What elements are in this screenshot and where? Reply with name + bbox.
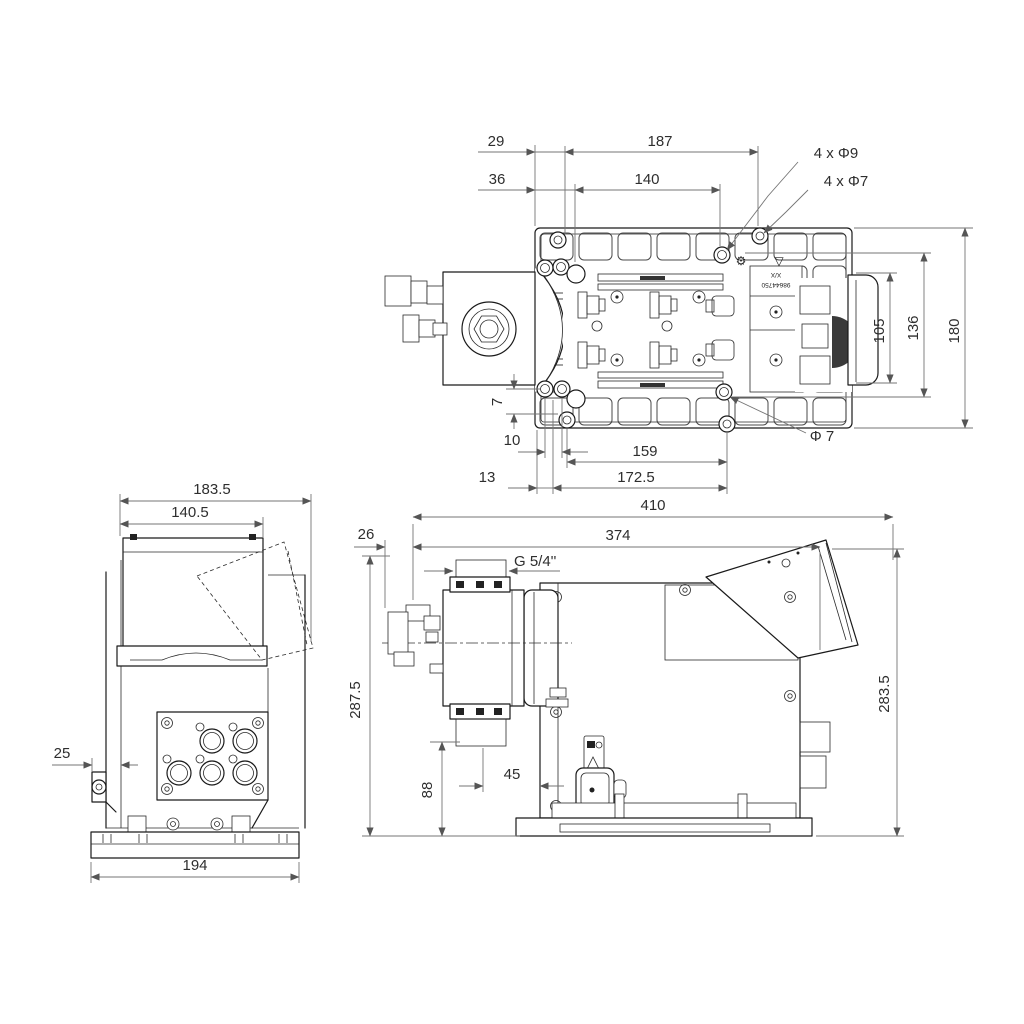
terminal-face: [157, 712, 268, 800]
dim-label-287-5: 287.5: [347, 681, 364, 719]
hole-callout-9: 4 x Φ9: [814, 145, 859, 162]
dim-label-374: 374: [605, 527, 630, 544]
hole-callout-dia7: Φ 7: [810, 428, 834, 445]
plate-variant-label: X/X: [770, 271, 781, 278]
dim-label-7: 7: [489, 398, 506, 406]
cable-gland-side: [388, 605, 443, 673]
technical-drawing-page: X/X 98644750 ⚙ ▽: [0, 0, 1024, 1024]
dim-label-105: 105: [871, 318, 888, 343]
dim-label-13: 13: [479, 469, 496, 486]
end-view: 183.5 140.5 25 194: [52, 481, 313, 883]
warning-label: [584, 736, 604, 772]
dim-label-187: 187: [647, 133, 672, 150]
suction-valve: [450, 704, 510, 746]
vent-knob-top: [403, 315, 447, 342]
hole-callout-7: 4 x Φ7: [824, 173, 869, 190]
dim-label-159: 159: [632, 443, 657, 460]
hood: [117, 534, 267, 666]
cable-gland-top: [385, 276, 443, 306]
thread-callout: G 5/4'': [514, 553, 557, 570]
plate-part-number: 98644750: [761, 281, 790, 288]
dim-label-45: 45: [504, 766, 521, 783]
dim-label-172-5: 172.5: [617, 469, 655, 486]
dim-label-29: 29: [488, 133, 505, 150]
pump-head-top: [385, 272, 535, 385]
dim-label-136: 136: [905, 315, 922, 340]
dim-label-194: 194: [182, 857, 207, 874]
dim-label-140: 140: [634, 171, 659, 188]
dim-label-88: 88: [419, 782, 436, 799]
dim-label-26: 26: [358, 526, 375, 543]
top-view: X/X 98644750 ⚙ ▽: [385, 133, 973, 494]
dim-label-10: 10: [504, 432, 521, 449]
dim-label-180: 180: [946, 318, 963, 343]
triangle-icon: ▽: [774, 254, 784, 268]
gear-icon: ⚙: [736, 254, 747, 268]
pump-dimensional-drawing: X/X 98644750 ⚙ ▽: [0, 0, 1024, 1024]
dim-label-283-5: 283.5: [876, 675, 893, 713]
mounting-bracket: [92, 772, 116, 812]
dim-label-140-5: 140.5: [171, 504, 209, 521]
adjustment-knobs-side: [800, 722, 830, 788]
dim-label-183-5: 183.5: [193, 481, 231, 498]
base-end-view: [91, 816, 299, 858]
clamp-rail-area: X/X 98644750 ⚙ ▽: [563, 254, 802, 394]
dim-label-410: 410: [640, 497, 665, 514]
side-view: 410 26 374 G 5/4'' 287.5 88 45: [347, 497, 904, 836]
dim-label-25: 25: [54, 745, 71, 762]
discharge-valve: [450, 560, 510, 592]
dim-label-36: 36: [489, 171, 506, 188]
